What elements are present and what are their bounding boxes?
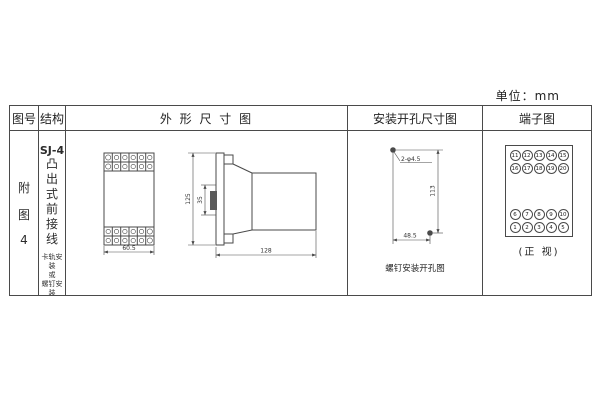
mounting-caption: 螺钉安装开孔图 [385,263,445,274]
mounting-holes: 2-φ4.5 113 48.5 [390,147,443,244]
terminal-row: 1 2 3 4 5 [510,222,569,233]
mounting-note: 卡轨安装 或 螺钉安装 [39,253,65,295]
dim-rail-width: 35 [197,196,204,204]
mounting-diagram-cell: 2-φ4.5 113 48.5 螺钉安装开孔图 [348,131,483,295]
terminal-group-bottom: 6 7 8 9 10 1 2 3 4 5 [510,209,569,233]
dim-horizontal: 48.5 [403,233,417,240]
figure-no-char: 图 [18,206,30,223]
header-figure-no: 图号 [10,106,39,131]
terminal: 10 [558,209,569,220]
din-rail-clip [210,191,217,210]
structure-char: 出 [46,172,58,187]
dim-front-width: 60.5 [122,245,136,252]
terminal: 9 [546,209,557,220]
dim-depth: 128 [260,248,272,255]
terminal: 12 [522,150,533,161]
terminal: 6 [510,209,521,220]
structure-char: 线 [46,232,58,247]
mounting-hole-drawing: 2-φ4.5 113 48.5 螺钉安装开孔图 [348,131,483,295]
dim-vertical: 113 [430,185,437,197]
figure-no-char: 附 [18,179,30,196]
terminal: 19 [546,163,557,174]
dim-height: 125 [185,193,192,205]
relay-side-view: 125 35 128 [185,153,316,258]
structure-char: 凸 [46,157,58,172]
structure-char: 前 [46,202,58,217]
terminal: 16 [510,163,521,174]
terminal: 17 [522,163,533,174]
terminal-diagram-cell: 11 12 13 14 15 16 17 18 19 20 [483,131,591,295]
figure-no-cell: 附 图 4 [10,131,39,295]
dim-hole-spec: 2-φ4.5 [401,156,421,163]
header-terminal: 端子图 [483,106,591,131]
structure-cell: SJ-4 凸 出 式 前 接 线 卡轨安装 或 螺钉安装 [39,131,66,295]
header-mounting: 安装开孔尺寸图 [348,106,483,131]
structure-char: 接 [46,217,58,232]
terminal-caption: (正 视) [505,243,573,258]
terminal: 2 [522,222,533,233]
header-structure: 结构 [39,106,66,131]
terminal-row: 11 12 13 14 15 [510,150,569,161]
terminal: 7 [522,209,533,220]
terminal: 8 [534,209,545,220]
terminal: 20 [558,163,569,174]
terminal: 15 [558,150,569,161]
terminal: 5 [558,222,569,233]
terminal: 11 [510,150,521,161]
terminal-group-top: 11 12 13 14 15 16 17 18 19 20 [510,150,569,174]
terminal: 3 [534,222,545,233]
terminal: 13 [534,150,545,161]
terminal-block: 11 12 13 14 15 16 17 18 19 20 [505,145,573,237]
model-label: SJ-4 [40,144,64,157]
drawing-table: 图号 结构 外 形 尺 寸 图 安装开孔尺寸图 端子图 附 图 4 SJ-4 凸… [9,105,592,296]
terminal-row: 6 7 8 9 10 [510,209,569,220]
terminal: 4 [546,222,557,233]
relay-front-view: 60.5 [104,153,154,255]
figure-no-char: 4 [20,233,28,247]
unit-label: 单位：mm [496,87,560,104]
header-outline: 外 形 尺 寸 图 [66,106,348,131]
terminal: 18 [534,163,545,174]
drawing-sheet: 单位：mm 图号 结构 外 形 尺 寸 图 安装开孔尺寸图 端子图 附 图 4 … [0,0,600,400]
terminal: 14 [546,150,557,161]
outline-dimension-drawing: 60.5 [66,131,348,295]
outline-diagram-cell: 60.5 [66,131,348,295]
structure-char: 式 [46,187,58,202]
terminal-row: 16 17 18 19 20 [510,163,569,174]
terminal: 1 [510,222,521,233]
